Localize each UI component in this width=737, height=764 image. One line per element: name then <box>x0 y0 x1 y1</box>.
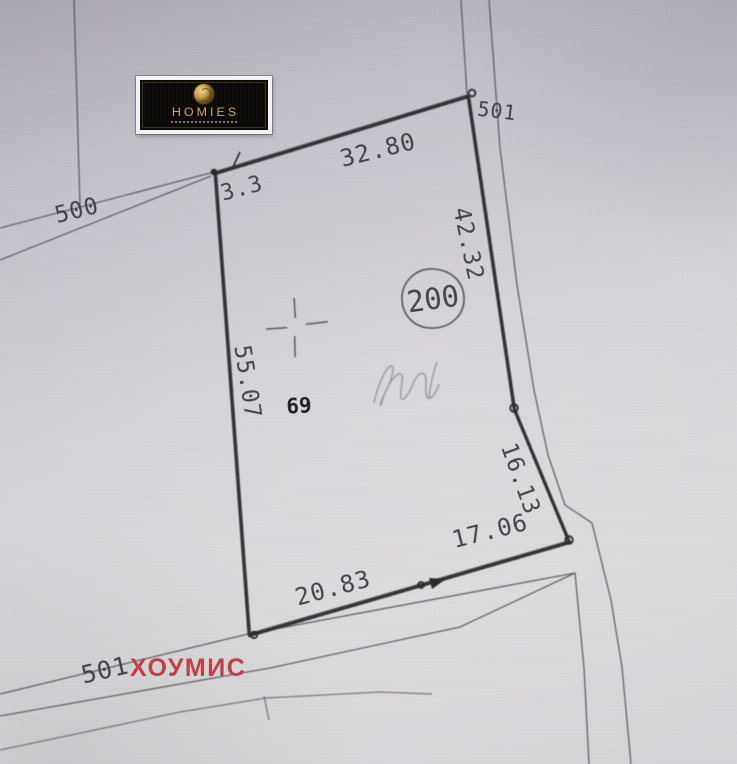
parcel-secondary-number: 69 <box>286 393 313 418</box>
logo-brand-text: HOMIES <box>169 105 239 118</box>
parcel-line-top-left <box>74 0 80 206</box>
parcel-number-label: 200 <box>405 279 462 320</box>
direction-arrow-bottom-edge <box>429 578 446 589</box>
vertex-marker-top-right <box>469 90 476 97</box>
cadastral-thin-lines <box>0 0 631 764</box>
coordinate-cross-icon <box>264 296 330 359</box>
bottom-parcel-stub <box>264 696 269 720</box>
cross-arm-left <box>266 328 287 329</box>
road-label-501-top: 501 <box>476 97 518 126</box>
homies-logo: HOMIES <box>136 76 272 134</box>
plot-underlying-outline <box>214 95 568 634</box>
bottom-parcel-line <box>0 692 432 750</box>
cross-arm-right <box>306 322 328 325</box>
survey-linework <box>0 0 737 764</box>
logo-tagline-decoration <box>171 121 237 123</box>
road-501-bottom-lower-edge <box>0 573 575 716</box>
road-500-lower-edge <box>0 176 211 260</box>
cross-arm-top <box>294 298 295 318</box>
cadastral-sketch-photo: 32.80 3.3 42.32 16.13 17.06 20.83 55.07 … <box>0 0 737 764</box>
pencil-scribble <box>374 362 439 405</box>
vertex-marker-top-left <box>212 170 217 175</box>
agency-watermark-text: ХОУМИС <box>130 654 246 683</box>
road-501-left-edge <box>461 0 467 95</box>
logo-coin-icon <box>194 84 214 104</box>
road-500-upper-edge <box>0 172 214 228</box>
cross-arm-bottom <box>294 336 296 357</box>
